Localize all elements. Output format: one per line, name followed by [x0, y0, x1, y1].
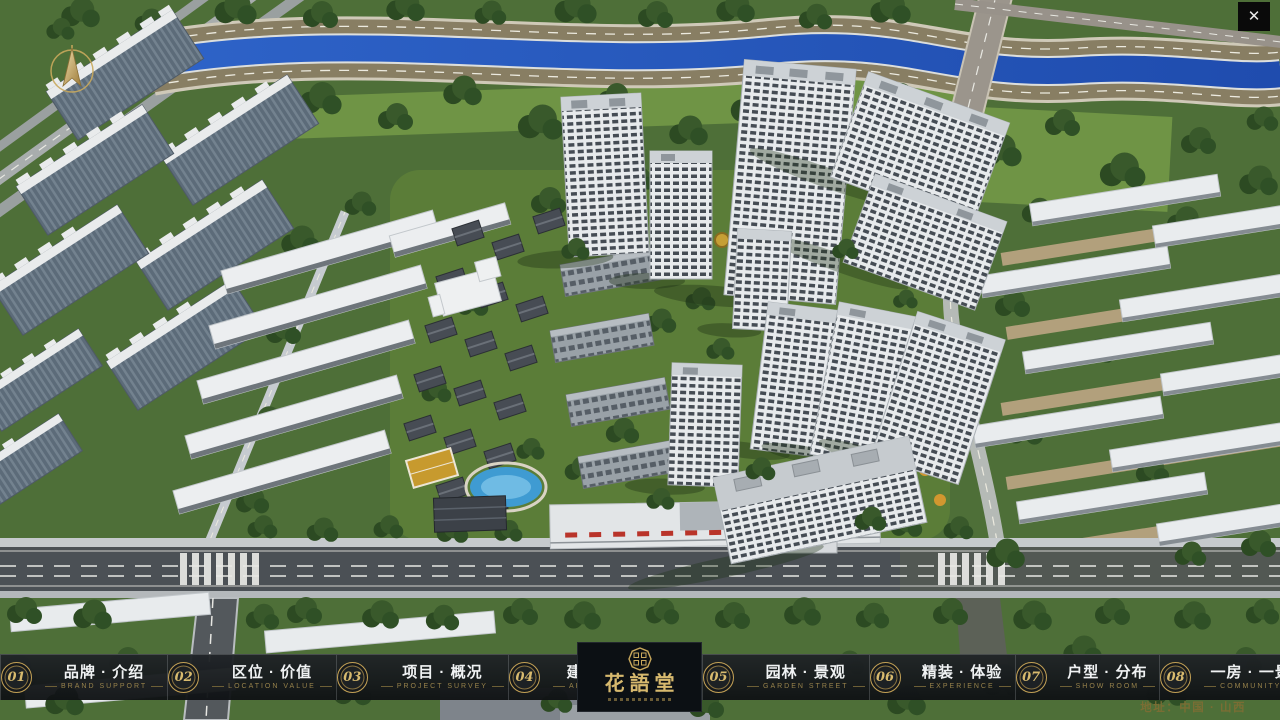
nav-item-brand[interactable]: 01 品牌 · 介绍 BRAND SUPPORT	[0, 655, 167, 700]
nav-label-en: EXPERIENCE	[910, 683, 1015, 690]
nav-label-zh: 户型 · 分布	[1067, 665, 1147, 682]
nav-item-project[interactable]: 03 项目 · 概况 PROJECT SURVEY	[336, 655, 508, 700]
nav-number-badge: 05	[703, 662, 734, 693]
nav-number-badge: 02	[168, 662, 199, 693]
nav-label-en: SHOW ROOM	[1056, 683, 1160, 690]
nav-label-en: LOCATION VALUE	[208, 683, 336, 690]
nav-label-zh: 精装 · 体验	[922, 665, 1002, 682]
chinese-pavilion	[433, 496, 506, 532]
nav-number-badge: 01	[1, 662, 32, 693]
nav-label-zh: 品牌 · 介绍	[64, 665, 144, 682]
logo-caption-marks	[608, 698, 672, 701]
nav-number-badge: 07	[1016, 662, 1047, 693]
nav-number-badge: 06	[870, 662, 901, 693]
compass-icon	[44, 42, 100, 98]
nav-item-garden[interactable]: 05 园林 · 景观 GARDEN STREET	[702, 655, 869, 700]
nav-number-badge: 08	[1160, 662, 1191, 693]
nav-item-floorplans[interactable]: 07 户型 · 分布 SHOW ROOM	[1015, 655, 1160, 700]
nav-label-zh: 区位 · 价值	[232, 665, 312, 682]
sales-presentation-screen: ✕ 01 品牌 · 介绍 BRAND SUPPORT 02 区位 · 价值 LO…	[0, 0, 1280, 720]
nav-left-group: 01 品牌 · 介绍 BRAND SUPPORT 02 区位 · 价值 LOCA…	[0, 655, 577, 700]
nav-item-interior[interactable]: 06 精装 · 体验 EXPERIENCE	[869, 655, 1015, 700]
nav-label-en: BRAND SUPPORT	[41, 683, 167, 690]
project-address: 地址：中国 · 山西	[1140, 699, 1246, 715]
nav-label-en: PROJECT SURVEY	[377, 683, 508, 690]
logo-seal-icon	[628, 647, 652, 671]
close-icon: ✕	[1248, 9, 1261, 24]
nav-label-en: COMMUNITY	[1200, 683, 1280, 690]
nav-label-zh: 项目 · 概况	[402, 665, 482, 682]
close-button[interactable]: ✕	[1238, 2, 1270, 31]
nav-right-group: 05 园林 · 景观 GARDEN STREET 06 精装 · 体验 EXPE…	[702, 655, 1280, 700]
project-name: 花語堂	[600, 672, 680, 694]
nav-number-badge: 04	[509, 662, 540, 693]
project-logo-panel[interactable]: 花語堂	[577, 642, 702, 712]
nav-number-badge: 03	[337, 662, 368, 693]
nav-label-en: GARDEN STREET	[743, 683, 869, 690]
nav-label-zh: 园林 · 景观	[766, 665, 846, 682]
masterplan-render	[0, 0, 1280, 720]
nav-label-zh: 一房 · 一景	[1211, 665, 1280, 682]
nav-item-views[interactable]: 08 一房 · 一景 COMMUNITY	[1159, 655, 1280, 700]
nav-item-location[interactable]: 02 区位 · 价值 LOCATION VALUE	[167, 655, 336, 700]
